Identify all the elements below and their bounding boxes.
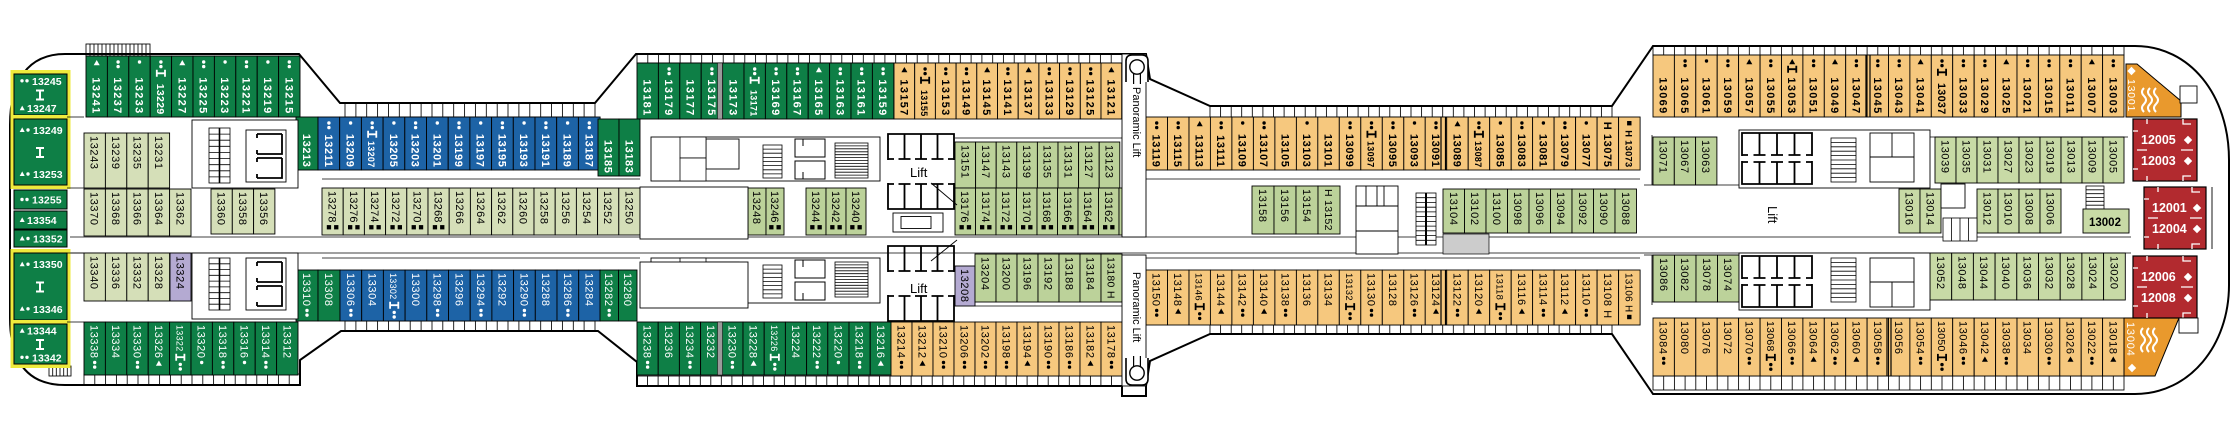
svg-text:13034: 13034 [2021, 321, 2033, 355]
svg-text:13043: 13043 [1892, 77, 1904, 114]
svg-text:13007: 13007 [2085, 77, 2097, 114]
svg-text:13322: 13322 [174, 325, 184, 352]
svg-text:13058: 13058 [1871, 321, 1883, 355]
svg-text:12003: 12003 [2141, 154, 2176, 168]
svg-text:13213: 13213 [300, 134, 312, 168]
svg-text:13118: 13118 [1493, 273, 1504, 300]
svg-text:13276: 13276 [347, 191, 359, 223]
svg-text:13202: 13202 [979, 325, 991, 359]
svg-text:13234: 13234 [683, 325, 695, 359]
svg-text:13258: 13258 [538, 191, 550, 225]
svg-text:13316: 13316 [238, 325, 250, 359]
svg-text:13201: 13201 [430, 134, 442, 168]
svg-text:13200: 13200 [1000, 257, 1012, 291]
svg-text:13178: 13178 [1105, 325, 1117, 359]
svg-text:13280: 13280 [621, 273, 633, 307]
svg-text:13183: 13183 [623, 140, 635, 174]
svg-text:13053: 13053 [1785, 77, 1797, 114]
svg-text:13151: 13151 [958, 145, 970, 179]
svg-text:13296: 13296 [452, 273, 464, 307]
svg-text:13125: 13125 [1084, 79, 1096, 116]
svg-text:13215: 13215 [282, 77, 294, 114]
svg-text:13318: 13318 [216, 325, 228, 359]
svg-text:13109: 13109 [1236, 134, 1248, 168]
svg-text:13140: 13140 [1257, 273, 1269, 307]
svg-text:13176: 13176 [958, 191, 970, 223]
svg-text:13188: 13188 [1063, 257, 1075, 291]
svg-text:13268: 13268 [432, 191, 444, 223]
svg-text:13006: 13006 [2044, 192, 2056, 226]
svg-text:13048: 13048 [1956, 256, 1968, 290]
svg-text:13050: 13050 [1935, 321, 1947, 352]
svg-text:13061: 13061 [1700, 77, 1712, 114]
svg-text:13096: 13096 [1533, 192, 1545, 226]
svg-text:13145: 13145 [980, 79, 992, 116]
svg-text:13135: 13135 [1041, 145, 1053, 179]
svg-text:13045: 13045 [1871, 77, 1883, 114]
svg-text:13197: 13197 [474, 134, 486, 168]
svg-text:13190: 13190 [1042, 325, 1054, 359]
svg-text:13072: 13072 [1721, 321, 1733, 355]
svg-text:13052: 13052 [1934, 256, 1946, 290]
svg-text:13245: 13245 [32, 76, 62, 88]
svg-text:13063: 13063 [1699, 140, 1711, 174]
svg-text:13144: 13144 [1214, 273, 1226, 307]
svg-text:13083: 13083 [1515, 134, 1527, 168]
svg-text:13288: 13288 [539, 273, 551, 307]
svg-text:13354: 13354 [27, 215, 57, 227]
svg-text:13090: 13090 [1597, 192, 1609, 226]
svg-text:13232: 13232 [704, 325, 716, 359]
svg-text:13056: 13056 [1892, 321, 1904, 355]
svg-text:13067: 13067 [1678, 140, 1690, 174]
svg-text:13172: 13172 [999, 191, 1011, 223]
svg-text:13131: 13131 [1061, 145, 1073, 179]
svg-text:13366: 13366 [131, 192, 143, 226]
svg-text:13240: 13240 [849, 191, 861, 223]
svg-text:13121: 13121 [1104, 79, 1116, 116]
svg-text:13243: 13243 [88, 136, 100, 170]
svg-text:13002: 13002 [2089, 217, 2121, 229]
svg-text:13055: 13055 [1764, 77, 1776, 114]
svg-text:13179: 13179 [662, 79, 674, 116]
svg-text:Panoramic Lift: Panoramic Lift [1130, 87, 1142, 157]
svg-text:13139: 13139 [1020, 145, 1032, 179]
svg-text:13181: 13181 [641, 79, 653, 116]
svg-text:13218: 13218 [853, 325, 865, 359]
svg-text:13210: 13210 [937, 325, 949, 359]
svg-text:13112: 13112 [1558, 273, 1570, 306]
svg-text:13221: 13221 [240, 77, 252, 114]
svg-text:13080: 13080 [1678, 321, 1690, 355]
svg-text:13093: 13093 [1408, 134, 1420, 168]
svg-text:13177: 13177 [684, 79, 696, 116]
svg-text:13003: 13003 [2106, 77, 2118, 114]
svg-text:13014: 13014 [1924, 192, 1936, 226]
svg-text:13228: 13228 [747, 325, 759, 359]
svg-text:13155: 13155 [919, 90, 929, 117]
svg-text:13032: 13032 [2042, 256, 2054, 290]
svg-text:13225: 13225 [197, 77, 209, 114]
svg-text:13084: 13084 [1657, 321, 1669, 355]
svg-text:13260: 13260 [516, 191, 528, 225]
svg-text:13103: 13103 [1300, 134, 1312, 168]
svg-text:13015: 13015 [2042, 77, 2054, 114]
svg-text:13196: 13196 [1021, 257, 1033, 291]
svg-text:13205: 13205 [387, 134, 399, 168]
svg-text:13153: 13153 [939, 79, 951, 116]
svg-text:13352: 13352 [33, 234, 63, 246]
svg-text:Lift: Lift [910, 281, 928, 296]
svg-text:13211: 13211 [322, 135, 334, 168]
svg-text:13041: 13041 [1914, 77, 1926, 114]
svg-text:13328: 13328 [152, 256, 164, 290]
svg-text:13082: 13082 [1678, 258, 1690, 292]
svg-text:13044: 13044 [1977, 256, 1989, 290]
svg-text:13047: 13047 [1849, 77, 1861, 114]
svg-text:13312: 13312 [280, 325, 292, 359]
svg-text:13310: 13310 [300, 273, 312, 307]
svg-text:13214: 13214 [895, 325, 907, 359]
svg-text:13113: 13113 [1193, 135, 1205, 168]
svg-text:13249: 13249 [33, 125, 63, 137]
svg-text:13069: 13069 [1657, 77, 1669, 114]
svg-text:13166: 13166 [1061, 191, 1073, 223]
svg-text:13362: 13362 [173, 192, 185, 226]
svg-text:13264: 13264 [474, 191, 486, 225]
svg-text:13326: 13326 [152, 325, 164, 359]
svg-text:13364: 13364 [152, 192, 164, 226]
svg-text:13105: 13105 [1279, 134, 1291, 168]
svg-text:12004: 12004 [2152, 222, 2187, 236]
svg-text:13060: 13060 [1849, 321, 1861, 355]
svg-text:13095: 13095 [1386, 134, 1398, 168]
svg-text:13162: 13162 [1102, 191, 1114, 223]
svg-text:13306: 13306 [344, 273, 356, 307]
svg-text:13360: 13360 [215, 192, 227, 226]
svg-text:13241: 13241 [90, 77, 102, 114]
svg-text:13068: 13068 [1764, 321, 1776, 352]
svg-text:13159: 13159 [876, 79, 888, 116]
svg-text:13042: 13042 [1978, 321, 1990, 355]
svg-text:13021: 13021 [2021, 77, 2033, 114]
svg-text:13165: 13165 [812, 79, 824, 116]
svg-text:13036: 13036 [2021, 256, 2033, 290]
svg-text:13208: 13208 [958, 269, 970, 303]
svg-text:13346: 13346 [33, 304, 63, 316]
svg-text:13147: 13147 [979, 145, 991, 179]
svg-text:13157: 13157 [897, 79, 909, 116]
svg-text:13226: 13226 [769, 325, 779, 352]
svg-text:13278: 13278 [326, 191, 338, 223]
svg-text:13066: 13066 [1785, 321, 1797, 355]
svg-text:13013: 13013 [2065, 140, 2077, 174]
svg-text:13332: 13332 [131, 256, 143, 290]
svg-text:13134: 13134 [1322, 273, 1334, 307]
svg-text:13079: 13079 [1558, 134, 1570, 168]
svg-text:13074: 13074 [1721, 258, 1733, 292]
svg-text:13370: 13370 [88, 192, 100, 226]
svg-text:13088: 13088 [1619, 192, 1631, 226]
svg-text:13194: 13194 [1021, 325, 1033, 359]
svg-text:13239: 13239 [109, 136, 121, 170]
svg-text:13106 H: 13106 H [1622, 273, 1633, 312]
svg-text:13133: 13133 [1042, 79, 1054, 116]
svg-text:13174: 13174 [979, 191, 991, 223]
svg-text:13189: 13189 [561, 134, 573, 168]
svg-text:13330: 13330 [131, 325, 143, 359]
svg-text:12006: 12006 [2141, 270, 2176, 284]
svg-text:13016: 13016 [1903, 192, 1915, 226]
svg-text:13099: 13099 [1343, 134, 1355, 168]
svg-text:13120: 13120 [1472, 273, 1484, 307]
svg-text:13087: 13087 [1473, 141, 1483, 168]
svg-text:13100: 13100 [1490, 192, 1502, 226]
svg-text:13300: 13300 [409, 273, 421, 307]
svg-text:13064: 13064 [1807, 321, 1819, 355]
svg-text:13011: 13011 [2064, 78, 2076, 114]
svg-text:13059: 13059 [1721, 77, 1733, 114]
svg-text:13008: 13008 [2023, 192, 2035, 226]
svg-text:Panoramic Lift: Panoramic Lift [1130, 272, 1142, 342]
svg-text:13092: 13092 [1576, 192, 1588, 226]
svg-text:13071: 13071 [1657, 140, 1669, 174]
svg-text:13031: 13031 [1981, 140, 1993, 174]
svg-text:13324: 13324 [174, 256, 186, 290]
svg-text:13136: 13136 [1300, 273, 1312, 307]
svg-text:13224: 13224 [789, 325, 801, 359]
svg-text:13302: 13302 [388, 273, 398, 300]
svg-text:13220: 13220 [831, 325, 843, 359]
svg-text:13070: 13070 [1742, 321, 1754, 355]
svg-text:13195: 13195 [495, 134, 507, 168]
svg-text:13089: 13089 [1451, 134, 1463, 168]
svg-text:13216: 13216 [874, 325, 886, 359]
svg-text:13266: 13266 [453, 191, 465, 225]
svg-text:13104: 13104 [1447, 192, 1459, 226]
svg-text:13148: 13148 [1171, 273, 1183, 307]
svg-text:13023: 13023 [2023, 140, 2035, 174]
svg-text:13171: 13171 [749, 90, 759, 117]
svg-text:13229: 13229 [154, 84, 166, 115]
svg-text:13168: 13168 [1040, 191, 1052, 223]
svg-text:13169: 13169 [769, 79, 781, 116]
svg-text:13163: 13163 [833, 79, 845, 116]
svg-text:13173: 13173 [726, 79, 738, 116]
svg-text:13350: 13350 [33, 259, 63, 271]
svg-text:13244: 13244 [809, 191, 821, 223]
svg-text:13142: 13142 [1236, 273, 1248, 307]
svg-text:13012: 13012 [1981, 192, 1993, 226]
svg-text:13320: 13320 [195, 325, 207, 359]
svg-text:13091: 13091 [1429, 134, 1441, 168]
svg-text:13175: 13175 [705, 79, 717, 116]
svg-text:13116: 13116 [1515, 273, 1527, 306]
svg-text:13146: 13146 [1193, 273, 1204, 301]
svg-text:13130: 13130 [1365, 273, 1377, 307]
svg-text:13029: 13029 [1978, 77, 1990, 114]
svg-text:13027: 13027 [2002, 140, 2014, 174]
svg-text:13161: 13161 [855, 79, 867, 116]
svg-text:Lift: Lift [1765, 206, 1780, 224]
svg-text:13114: 13114 [1536, 273, 1548, 306]
svg-text:13150: 13150 [1150, 273, 1162, 307]
svg-text:13203: 13203 [409, 134, 421, 168]
svg-text:13009: 13009 [2086, 140, 2098, 174]
svg-text:13129: 13129 [1063, 79, 1075, 116]
svg-text:13340: 13340 [88, 256, 100, 290]
svg-text:13262: 13262 [495, 191, 507, 225]
svg-text:13233: 13233 [133, 77, 145, 114]
svg-text:13101: 13101 [1322, 134, 1334, 168]
svg-text:13035: 13035 [1960, 140, 1972, 174]
svg-text:13030: 13030 [2042, 321, 2054, 355]
svg-text:13098: 13098 [1511, 192, 1523, 226]
svg-text:13282: 13282 [602, 273, 614, 307]
svg-text:13198: 13198 [1000, 325, 1012, 359]
svg-text:13284: 13284 [583, 273, 595, 307]
svg-text:13025: 13025 [1999, 77, 2011, 114]
svg-text:13126: 13126 [1408, 273, 1420, 307]
svg-text:13207: 13207 [366, 141, 376, 168]
svg-text:13298: 13298 [431, 273, 443, 307]
svg-text:13049: 13049 [1828, 77, 1840, 114]
svg-text:13108 H: 13108 H [1601, 273, 1613, 319]
svg-text:13182: 13182 [1084, 325, 1096, 359]
svg-text:13358: 13358 [236, 192, 248, 226]
svg-text:13192: 13192 [1042, 257, 1054, 291]
svg-text:13219: 13219 [261, 77, 273, 114]
svg-text:13304: 13304 [366, 273, 378, 307]
svg-text:13046: 13046 [1956, 321, 1968, 355]
svg-text:13094: 13094 [1554, 192, 1566, 226]
svg-text:13227: 13227 [175, 77, 187, 114]
svg-text:13193: 13193 [517, 134, 529, 168]
svg-text:13102: 13102 [1468, 192, 1480, 226]
svg-text:13078: 13078 [1700, 258, 1712, 292]
svg-text:13156: 13156 [1278, 189, 1290, 223]
svg-text:13097: 13097 [1366, 141, 1376, 168]
svg-text:13107: 13107 [1257, 134, 1269, 168]
svg-text:13019: 13019 [2044, 140, 2056, 174]
svg-text:13010: 13010 [2002, 192, 2014, 226]
svg-text:13231: 13231 [152, 136, 164, 170]
svg-text:13274: 13274 [368, 191, 380, 223]
svg-text:12001: 12001 [2152, 201, 2187, 215]
svg-text:Lift: Lift [910, 165, 928, 180]
svg-text:13252: 13252 [601, 191, 613, 225]
svg-text:13110: 13110 [1579, 273, 1591, 306]
svg-text:13270: 13270 [410, 191, 422, 223]
svg-text:13026: 13026 [2064, 321, 2076, 355]
svg-text:13154: 13154 [1300, 189, 1312, 223]
svg-text:12008: 12008 [2141, 291, 2176, 305]
svg-text:13086: 13086 [1657, 258, 1669, 292]
svg-text:13137: 13137 [1022, 79, 1034, 116]
svg-text:13199: 13199 [452, 134, 464, 168]
svg-text:13077: 13077 [1579, 134, 1591, 168]
svg-text:13247: 13247 [27, 103, 57, 115]
svg-text:13170: 13170 [1020, 191, 1032, 223]
svg-text:13223: 13223 [218, 77, 230, 114]
svg-text:13138: 13138 [1279, 273, 1291, 307]
svg-text:13236: 13236 [662, 325, 674, 359]
svg-text:13254: 13254 [580, 191, 592, 225]
svg-text:13123: 13123 [1103, 145, 1115, 179]
svg-text:13085: 13085 [1493, 134, 1505, 168]
svg-text:13122: 13122 [1451, 273, 1463, 307]
svg-text:13057: 13057 [1742, 77, 1754, 114]
svg-text:12005: 12005 [2141, 133, 2176, 147]
svg-text:13164: 13164 [1081, 191, 1093, 223]
svg-text:13342: 13342 [32, 352, 62, 364]
svg-text:13128: 13128 [1386, 273, 1398, 307]
svg-text:13076: 13076 [1700, 321, 1712, 355]
svg-text:13368: 13368 [109, 192, 121, 226]
svg-text:13255: 13255 [32, 195, 62, 207]
svg-text:13111: 13111 [1214, 135, 1226, 167]
svg-text:13222: 13222 [810, 325, 822, 359]
svg-text:13167: 13167 [791, 79, 803, 116]
svg-text:13180 H: 13180 H [1105, 257, 1117, 299]
svg-text:13212: 13212 [916, 325, 928, 359]
svg-text:13127: 13127 [1082, 145, 1094, 179]
svg-text:13294: 13294 [474, 273, 486, 307]
svg-text:13344: 13344 [27, 326, 57, 338]
svg-text:13038: 13038 [1999, 321, 2011, 355]
svg-text:13230: 13230 [725, 325, 737, 359]
svg-text:13250: 13250 [622, 191, 634, 225]
svg-text:13024: 13024 [2086, 256, 2098, 290]
svg-text:13158: 13158 [1256, 189, 1268, 223]
svg-text:13020: 13020 [2107, 256, 2119, 290]
svg-text:13334: 13334 [109, 325, 121, 359]
svg-text:H 13075: H 13075 [1601, 122, 1613, 168]
svg-text:13143: 13143 [1000, 145, 1012, 179]
svg-text:13004: 13004 [2124, 322, 2136, 357]
svg-text:13187: 13187 [582, 134, 594, 168]
svg-text:13338: 13338 [88, 325, 100, 359]
svg-text:13246: 13246 [768, 191, 780, 223]
svg-text:H 13073: H 13073 [1623, 130, 1633, 167]
svg-text:13356: 13356 [257, 192, 269, 226]
svg-text:13209: 13209 [344, 134, 356, 168]
svg-text:13256: 13256 [559, 191, 571, 225]
svg-text:13005: 13005 [2107, 140, 2119, 174]
svg-text:13238: 13238 [641, 325, 653, 359]
svg-text:13204: 13204 [979, 257, 991, 291]
svg-text:13149: 13149 [960, 79, 972, 116]
svg-text:13033: 13033 [1956, 77, 1968, 114]
svg-text:13119: 13119 [1150, 135, 1162, 168]
svg-text:13206: 13206 [958, 325, 970, 359]
svg-text:13081: 13081 [1536, 134, 1548, 168]
svg-text:13054: 13054 [1914, 321, 1926, 355]
svg-text:13115: 13115 [1171, 135, 1183, 168]
svg-text:13051: 13051 [1807, 77, 1819, 114]
svg-text:13248: 13248 [750, 191, 762, 225]
svg-text:13314: 13314 [259, 325, 271, 359]
svg-text:13242: 13242 [829, 191, 841, 223]
svg-text:13039: 13039 [1939, 140, 1951, 174]
svg-text:13253: 13253 [33, 169, 63, 181]
svg-text:13191: 13191 [539, 134, 551, 168]
svg-text:13308: 13308 [322, 273, 334, 307]
svg-text:13184: 13184 [1084, 257, 1096, 291]
svg-text:13235: 13235 [131, 136, 143, 170]
svg-text:13001: 13001 [2125, 79, 2137, 112]
svg-text:13186: 13186 [1063, 325, 1075, 359]
